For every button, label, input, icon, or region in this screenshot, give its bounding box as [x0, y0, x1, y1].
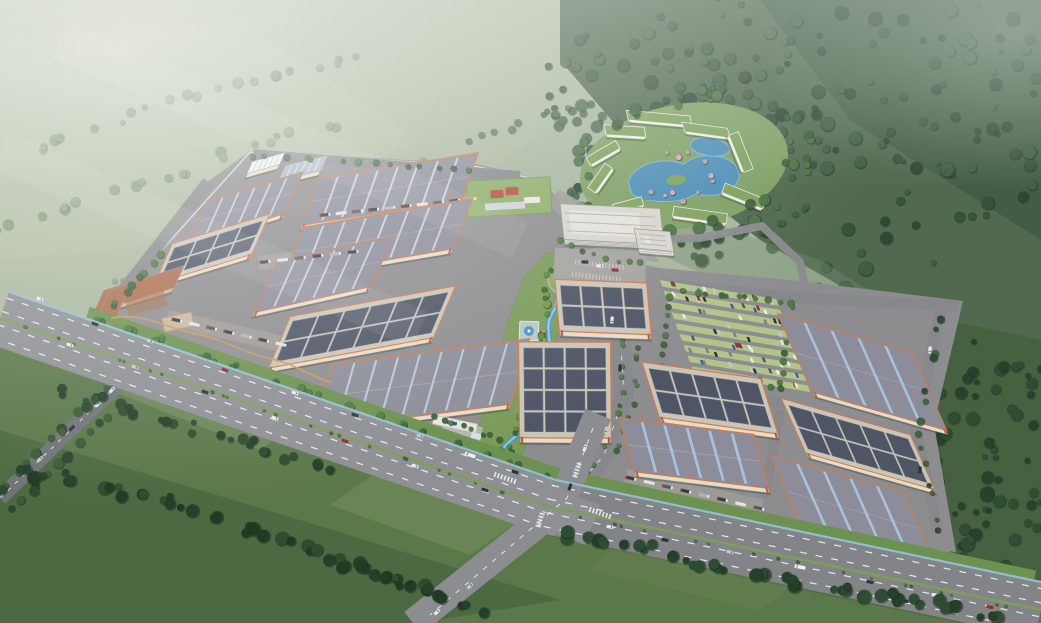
scene-layers [0, 0, 1041, 623]
industrial-park-aerial-rendering [0, 0, 1041, 623]
haze-hills [520, 0, 1041, 320]
aerial-rendering-viewport [0, 0, 1041, 623]
